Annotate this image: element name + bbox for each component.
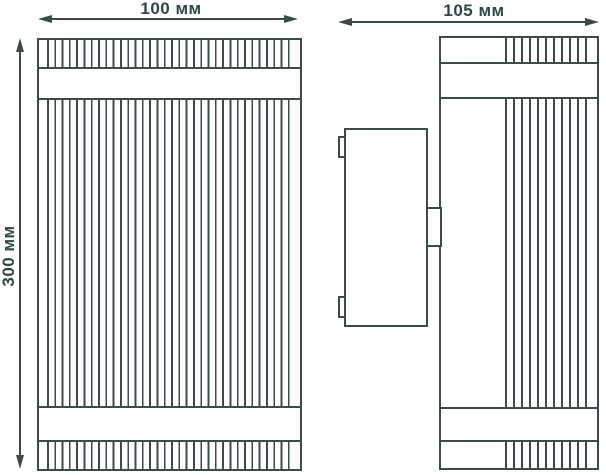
side-depth-label: 105 мм [404, 2, 544, 20]
front-view-ribs-middle [47, 100, 290, 406]
arrowhead-right-icon [284, 15, 298, 23]
front-view-band-divider [39, 440, 300, 442]
front-view-band-divider [39, 67, 300, 69]
front-height-dimension-line [19, 44, 21, 462]
front-width-label: 100 мм [101, 0, 241, 18]
front-view-ribs-top [47, 40, 290, 67]
front-view-ribs-bottom [47, 442, 290, 469]
side-view-band-divider [441, 440, 597, 442]
front-width-dimension-line [44, 18, 294, 20]
bracket-connector [426, 207, 442, 247]
technical-drawing-canvas: 100 мм 105 мм 300 мм [0, 0, 606, 475]
arrowhead-down-icon [16, 455, 24, 469]
mounting-bracket [344, 128, 428, 327]
front-view-band-divider [39, 406, 300, 408]
side-view-ribs-top [505, 38, 593, 62]
side-depth-dimension-line [344, 21, 594, 23]
front-view-band-divider [39, 98, 300, 100]
side-view-ribs-bottom [505, 442, 593, 468]
side-view-band-divider [441, 97, 597, 99]
front-height-label: 300 мм [0, 216, 18, 296]
arrowhead-right-icon [585, 18, 599, 26]
side-view-band-divider [441, 407, 597, 409]
arrowhead-up-icon [16, 38, 24, 52]
side-view-band-divider [441, 62, 597, 64]
arrowhead-left-icon [338, 18, 352, 26]
arrowhead-left-icon [38, 15, 52, 23]
side-view-ribs-middle [505, 99, 593, 407]
